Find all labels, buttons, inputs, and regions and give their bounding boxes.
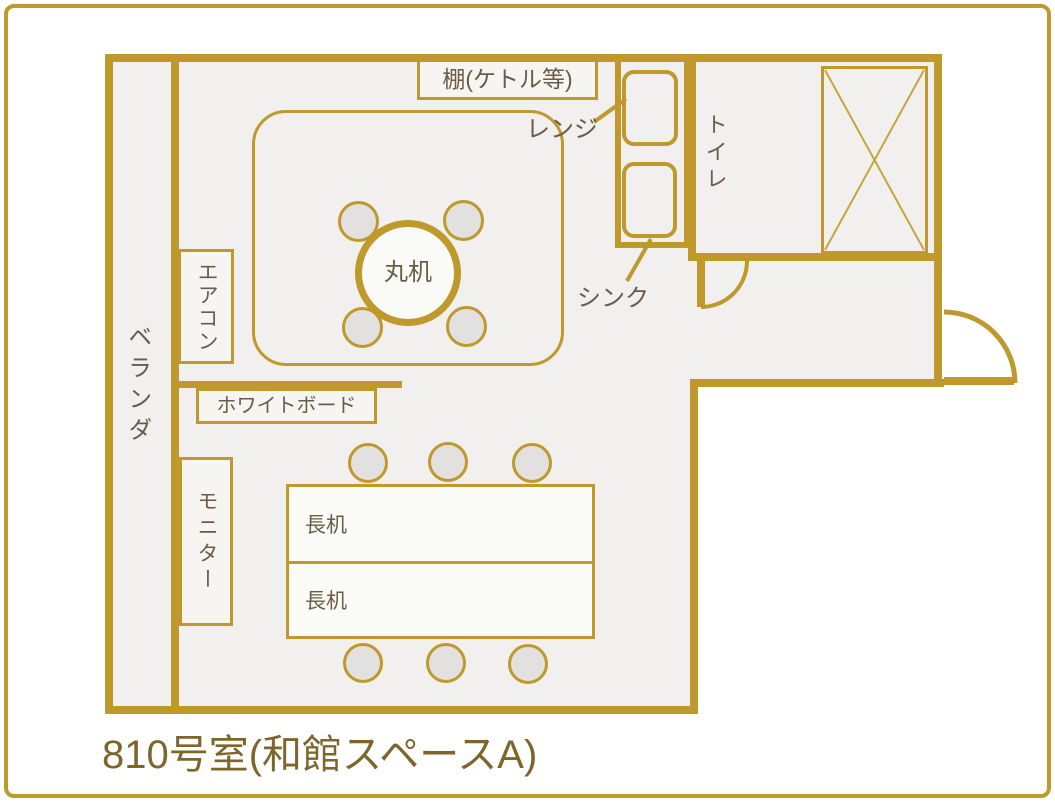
entrance-door-arc [944, 312, 1015, 383]
sink-pointer-line [627, 239, 651, 281]
page-title: 810号室(和館スペースA) [102, 722, 537, 780]
microwave-label-wrap: レンジ [520, 114, 598, 146]
veranda-label-wrap: ベランダ [122, 316, 152, 456]
sink-label: シンク [577, 285, 649, 313]
toilet-door-arc [701, 261, 747, 307]
microwave-pointer-line [594, 99, 626, 122]
toilet-label-wrap: トイレ [700, 110, 730, 196]
sink-label-wrap: シンク [576, 284, 650, 314]
microwave-label: レンジ [526, 116, 598, 144]
veranda-label: ベランダ [123, 324, 151, 448]
floor-plan: 丸机 長机 長机 棚(ケトル等) エアコン ホワイトボード モニター [0, 0, 1055, 805]
toilet-label: トイレ [702, 113, 727, 194]
